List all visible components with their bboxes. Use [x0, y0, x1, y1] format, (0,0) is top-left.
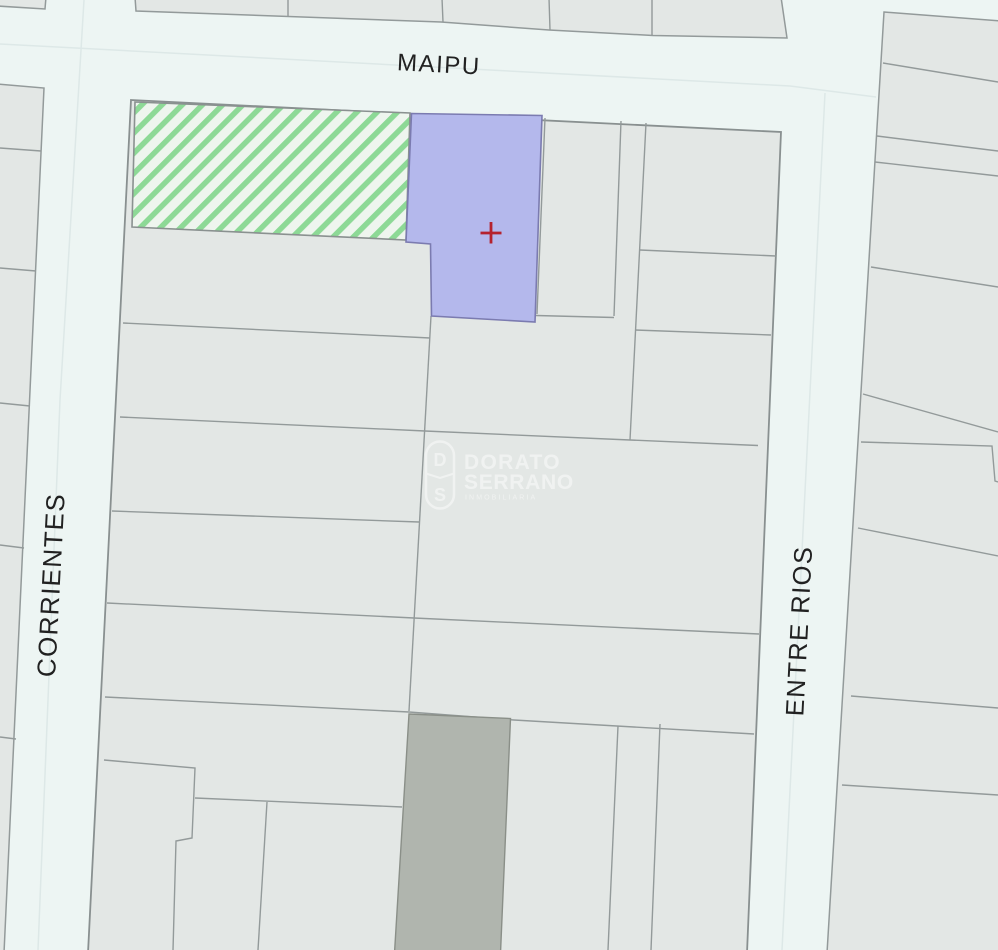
- svg-text:S: S: [434, 485, 446, 505]
- svg-text:SERRANO: SERRANO: [464, 471, 574, 494]
- svg-text:MAIPU: MAIPU: [396, 49, 481, 80]
- svg-text:INMOBILIARIA: INMOBILIARIA: [465, 495, 537, 502]
- svg-text:D: D: [434, 450, 447, 470]
